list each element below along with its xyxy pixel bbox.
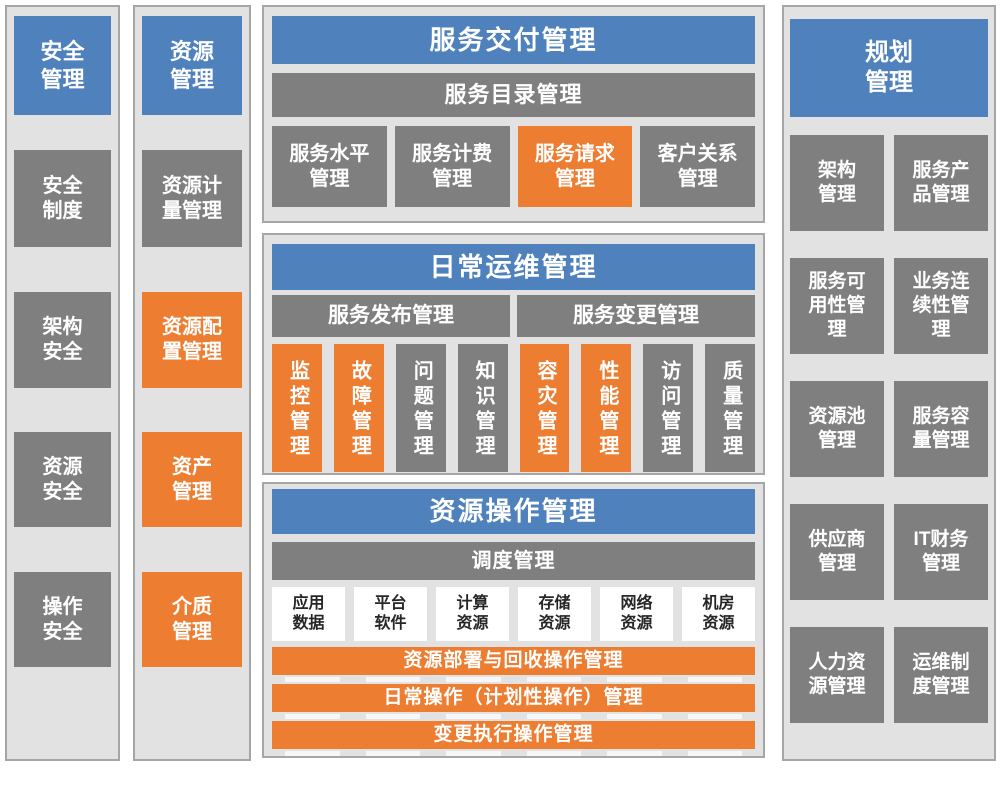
planning-panel-title: 规划管理 xyxy=(790,19,988,117)
divider-dashes xyxy=(272,675,755,684)
resource-panel: 资源管理 资源计量管理 资源配置管理 资产管理 介质管理 xyxy=(133,5,251,761)
security-item-0: 安全制度 xyxy=(14,150,111,247)
resource-type-3: 存储资源 xyxy=(518,587,591,641)
service-catalog-bar: 服务目录管理 xyxy=(272,73,755,117)
daily-ops-panel: 日常运维管理 服务发布管理 服务变更管理 监控管理 故障管理 问题管理 知识管理… xyxy=(262,233,765,475)
security-item-1: 架构安全 xyxy=(14,292,111,388)
planning-item-4: 资源池管理 xyxy=(790,381,884,477)
daily-ops-bar-change: 服务变更管理 xyxy=(517,295,755,337)
planning-item-3: 业务连续性管理 xyxy=(894,258,988,354)
resource-type-2: 计算资源 xyxy=(436,587,509,641)
resource-panel-title-label: 资源管理 xyxy=(167,38,217,93)
planning-panel: 规划管理 架构管理 服务产品管理 服务可用性管理 业务连续性管理 资源池管理 服… xyxy=(782,5,996,761)
planning-item-1: 服务产品管理 xyxy=(894,135,988,231)
divider-dashes xyxy=(272,749,755,758)
resource-item-3: 介质管理 xyxy=(142,572,242,667)
planning-item-9: 运维制度管理 xyxy=(894,627,988,723)
daily-ops-title: 日常运维管理 xyxy=(272,244,755,290)
service-delivery-item-0: 服务水平管理 xyxy=(272,126,387,207)
resource-item-2: 资产管理 xyxy=(142,432,242,527)
service-delivery-panel: 服务交付管理 服务目录管理 服务水平管理 服务计费管理 服务请求管理 客户关系管… xyxy=(262,5,765,223)
service-delivery-item-2: 服务请求管理 xyxy=(518,126,633,207)
ops-bar-deploy-reclaim: 资源部署与回收操作管理 xyxy=(272,647,755,675)
planning-item-6: 供应商管理 xyxy=(790,504,884,600)
security-item-2: 资源安全 xyxy=(14,432,111,527)
security-panel-title-label: 安全管理 xyxy=(38,38,88,93)
resource-type-4: 网络资源 xyxy=(600,587,673,641)
ops-bar-daily-planned: 日常操作（计划性操作）管理 xyxy=(272,684,755,712)
resource-item-0: 资源计量管理 xyxy=(142,150,242,247)
planning-item-2: 服务可用性管理 xyxy=(790,258,884,354)
service-delivery-item-1: 服务计费管理 xyxy=(395,126,510,207)
daily-ops-item-1: 故障管理 xyxy=(334,344,384,472)
ops-bar-change-exec: 变更执行操作管理 xyxy=(272,721,755,749)
daily-ops-item-2: 问题管理 xyxy=(396,344,446,472)
daily-ops-bar-release: 服务发布管理 xyxy=(272,295,510,337)
resource-ops-panel: 资源操作管理 调度管理 应用数据 平台软件 计算资源 存储资源 网络资源 机房资… xyxy=(262,482,765,758)
daily-ops-item-5: 性能管理 xyxy=(581,344,631,472)
planning-panel-title-label: 规划管理 xyxy=(862,38,916,98)
planning-item-0: 架构管理 xyxy=(790,135,884,231)
resource-item-1: 资源配置管理 xyxy=(142,292,242,388)
daily-ops-item-0: 监控管理 xyxy=(272,344,322,472)
planning-item-5: 服务容量管理 xyxy=(894,381,988,477)
resource-ops-title: 资源操作管理 xyxy=(272,489,755,534)
daily-ops-item-6: 访问管理 xyxy=(643,344,693,472)
daily-ops-item-7: 质量管理 xyxy=(705,344,755,472)
divider-dashes xyxy=(272,712,755,721)
resource-type-5: 机房资源 xyxy=(682,587,755,641)
resource-type-0: 应用数据 xyxy=(272,587,345,641)
planning-item-7: IT财务管理 xyxy=(894,504,988,600)
security-panel: 安全管理 安全制度 架构安全 资源安全 操作安全 xyxy=(5,5,120,761)
daily-ops-item-3: 知识管理 xyxy=(458,344,508,472)
service-delivery-title: 服务交付管理 xyxy=(272,16,755,64)
security-item-3: 操作安全 xyxy=(14,572,111,667)
daily-ops-item-4: 容灾管理 xyxy=(520,344,570,472)
service-delivery-item-3: 客户关系管理 xyxy=(640,126,755,207)
security-panel-title: 安全管理 xyxy=(14,16,111,115)
resource-type-1: 平台软件 xyxy=(354,587,427,641)
resource-panel-title: 资源管理 xyxy=(142,16,242,115)
schedule-bar: 调度管理 xyxy=(272,542,755,580)
planning-item-8: 人力资源管理 xyxy=(790,627,884,723)
